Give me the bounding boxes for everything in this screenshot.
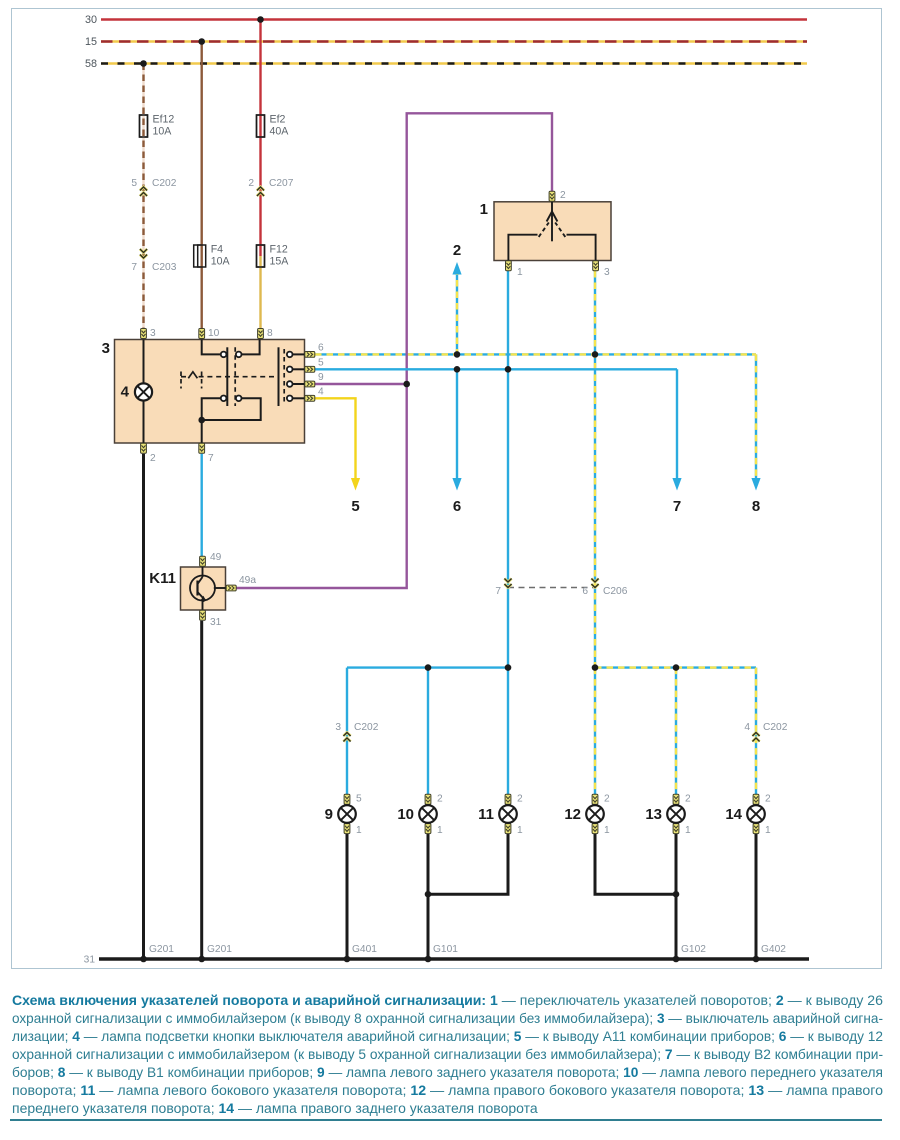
svg-text:1: 1 [437, 825, 443, 836]
svg-text:10: 10 [397, 806, 414, 823]
svg-text:C203: C203 [152, 262, 177, 273]
svg-text:4: 4 [744, 722, 750, 733]
svg-text:C202: C202 [152, 178, 177, 189]
svg-text:C202: C202 [354, 722, 379, 733]
svg-text:G102: G102 [681, 944, 706, 955]
svg-text:6: 6 [453, 498, 461, 515]
svg-text:2: 2 [437, 794, 443, 805]
svg-text:5: 5 [318, 358, 324, 369]
svg-text:31: 31 [84, 955, 96, 966]
svg-text:1: 1 [517, 825, 523, 836]
svg-text:2: 2 [248, 178, 254, 189]
svg-text:5: 5 [356, 794, 362, 805]
svg-text:2: 2 [765, 794, 771, 805]
svg-text:11: 11 [478, 806, 494, 823]
svg-text:G402: G402 [761, 944, 786, 955]
svg-text:40A: 40A [270, 126, 290, 138]
svg-text:49a: 49a [239, 575, 256, 586]
svg-text:49: 49 [210, 552, 222, 563]
svg-text:1: 1 [765, 825, 771, 836]
svg-text:9: 9 [318, 372, 324, 383]
svg-text:G101: G101 [433, 944, 458, 955]
svg-text:13: 13 [645, 806, 662, 823]
svg-text:7: 7 [495, 586, 501, 597]
svg-text:2: 2 [150, 453, 156, 464]
svg-text:15A: 15A [270, 256, 290, 268]
svg-text:10A: 10A [153, 126, 173, 138]
svg-text:F4: F4 [211, 244, 223, 256]
svg-text:9: 9 [325, 806, 333, 823]
svg-text:Ef12: Ef12 [153, 114, 175, 126]
svg-text:K11: K11 [149, 570, 176, 587]
svg-text:3: 3 [604, 267, 610, 278]
svg-text:Ef2: Ef2 [270, 114, 286, 126]
svg-text:7: 7 [673, 498, 681, 515]
svg-text:12: 12 [564, 806, 581, 823]
svg-text:3: 3 [150, 328, 156, 339]
svg-text:1: 1 [604, 825, 610, 836]
svg-text:1: 1 [517, 267, 523, 278]
svg-text:6: 6 [582, 586, 588, 597]
svg-text:31: 31 [210, 617, 222, 628]
svg-text:15: 15 [85, 36, 97, 48]
svg-text:G401: G401 [352, 944, 377, 955]
svg-text:3: 3 [102, 340, 110, 357]
svg-text:5: 5 [131, 178, 137, 189]
svg-text:F12: F12 [270, 244, 288, 256]
svg-text:C206: C206 [603, 586, 628, 597]
svg-text:2: 2 [604, 794, 610, 805]
svg-text:10A: 10A [211, 256, 231, 268]
svg-text:1: 1 [480, 201, 488, 218]
svg-text:1: 1 [685, 825, 691, 836]
svg-text:2: 2 [517, 794, 523, 805]
svg-text:C202: C202 [763, 722, 788, 733]
svg-text:10: 10 [208, 328, 220, 339]
svg-text:2: 2 [453, 242, 461, 259]
svg-text:6: 6 [318, 343, 324, 354]
svg-text:7: 7 [208, 453, 214, 464]
svg-text:G201: G201 [149, 944, 174, 955]
svg-text:4: 4 [121, 384, 130, 401]
svg-text:G201: G201 [207, 944, 232, 955]
svg-text:30: 30 [85, 14, 97, 26]
svg-text:8: 8 [267, 328, 273, 339]
svg-text:5: 5 [351, 498, 359, 515]
svg-text:4: 4 [318, 387, 324, 398]
svg-text:2: 2 [685, 794, 691, 805]
svg-text:C207: C207 [269, 178, 294, 189]
svg-text:2: 2 [560, 190, 566, 201]
svg-text:14: 14 [725, 806, 742, 823]
svg-text:8: 8 [752, 498, 760, 515]
svg-text:3: 3 [335, 722, 341, 733]
svg-text:58: 58 [85, 58, 97, 70]
svg-text:1: 1 [356, 825, 362, 836]
svg-text:7: 7 [131, 262, 137, 273]
